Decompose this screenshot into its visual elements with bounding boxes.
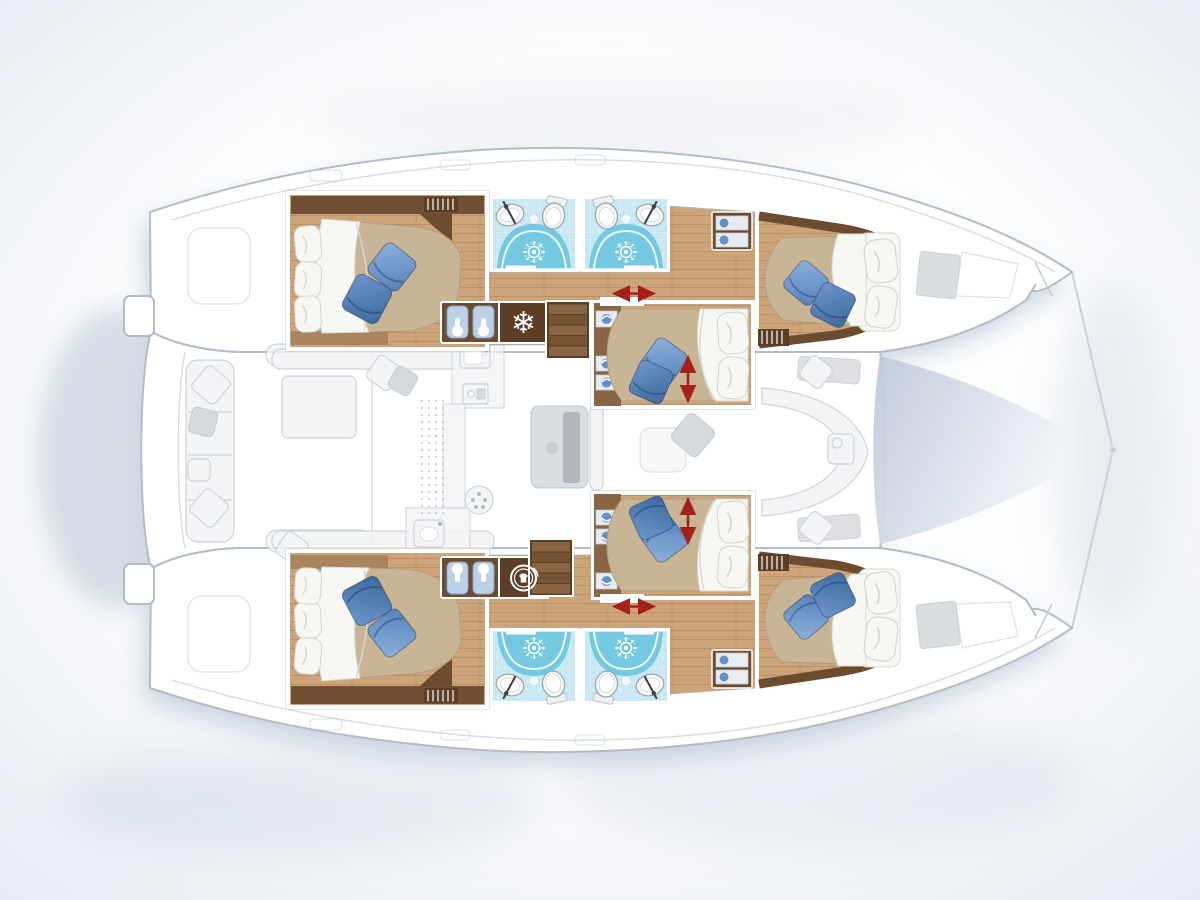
transom-step [124, 296, 154, 336]
galley-floor-mat [419, 398, 445, 518]
salon-table [531, 404, 603, 490]
stove-icon [465, 486, 493, 514]
companionway-stairs-starboard [529, 539, 573, 596]
forward-cockpit-table [828, 434, 854, 464]
deck-plan-svg: ❄ [0, 0, 1200, 900]
cushion [188, 459, 210, 481]
bridge-deck [141, 331, 884, 569]
oven-icon [463, 384, 488, 404]
bow-deck-hatch [916, 601, 960, 649]
aft-cockpit-bench [186, 360, 234, 542]
snowflake-fridge-icon: ❄ [511, 306, 536, 341]
galley-sink-icon [414, 520, 444, 547]
transom-step [124, 564, 154, 604]
bow-deck-hatch [916, 251, 960, 299]
mast-post [563, 412, 580, 483]
catamaran-floor-plan: ❄ [0, 0, 1200, 900]
cockpit-table [282, 376, 356, 438]
companionway-stairs-port [546, 301, 590, 359]
